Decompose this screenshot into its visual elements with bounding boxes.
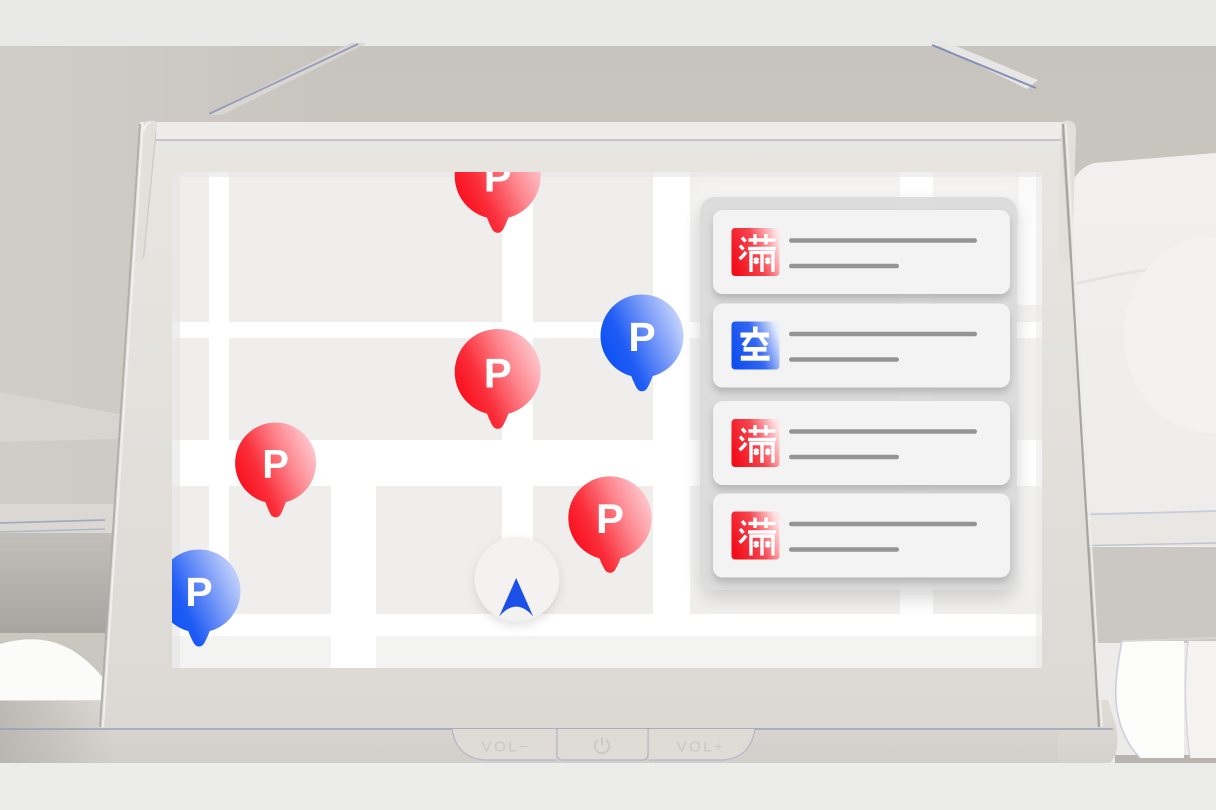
svg-text:P: P [185,569,212,615]
svg-text:P: P [484,349,512,396]
svg-text:VOL−: VOL− [482,739,531,756]
svg-text:P: P [262,443,289,487]
svg-text:P: P [596,495,624,542]
svg-text:P: P [628,314,655,360]
svg-text:VOL+: VOL+ [677,739,726,756]
